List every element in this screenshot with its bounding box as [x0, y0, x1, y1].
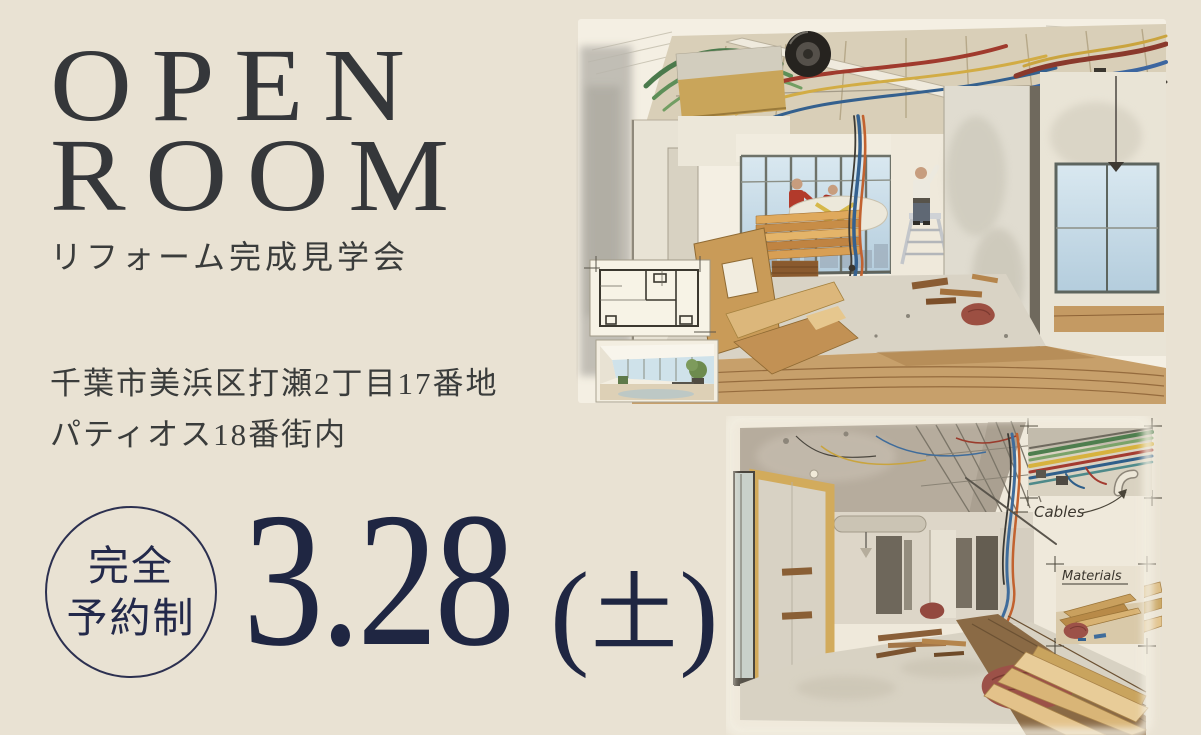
reservation-badge: 完全 予約制	[45, 506, 217, 678]
cables-label: Cables	[1034, 503, 1085, 521]
address-line-1: 千葉市美浜区打瀬2丁目17番地	[50, 358, 499, 409]
flyer-canvas: OPEN ROOM リフォーム完成見学会 千葉市美浜区打瀬2丁目17番地 パティ…	[0, 0, 1201, 735]
renovation-progress-illustration	[576, 16, 1168, 406]
address-line-2: パティオス18番街内	[50, 409, 499, 460]
venue-address: 千葉市美浜区打瀬2丁目17番地 パティオス18番街内	[50, 358, 499, 460]
event-subtitle: リフォーム完成見学会	[50, 232, 409, 278]
weekday-paren-close: )	[679, 555, 718, 673]
title-line-2: ROOM	[50, 131, 469, 221]
badge-line-1: 完全	[88, 540, 174, 592]
yellow-framed-wall	[734, 472, 830, 688]
renovation-progress-svg	[576, 16, 1168, 406]
page-title: OPEN ROOM	[50, 41, 469, 221]
materials-label: Materials	[1062, 569, 1122, 584]
badge-line-2: 予約制	[67, 592, 196, 644]
duct	[834, 516, 926, 532]
window-strip	[734, 472, 754, 684]
right-window-wall	[1040, 72, 1166, 356]
event-date: 3.28	[243, 484, 512, 676]
weekday-kanji: 土	[591, 571, 677, 657]
floor-plan-sketch	[584, 256, 716, 336]
weekday-paren-open: (	[550, 555, 589, 673]
gutted-room-svg: Cables Materials	[726, 416, 1162, 735]
bulb	[810, 470, 818, 478]
event-weekday: ( 土 )	[550, 566, 719, 662]
finished-room-sketch	[596, 340, 718, 402]
gutted-room-illustration: Cables Materials	[726, 416, 1162, 735]
ceiling-fan-icon	[785, 31, 831, 77]
materials-inset: Materials	[1046, 556, 1156, 654]
